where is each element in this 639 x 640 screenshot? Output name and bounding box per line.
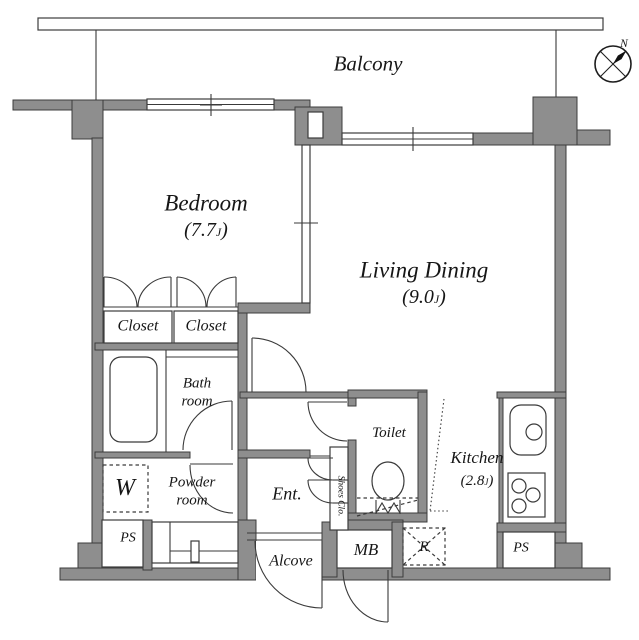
closet2-doors [177, 277, 236, 307]
toilet-bowl [372, 462, 404, 500]
balcony-label: Balcony [334, 52, 403, 77]
compass-north-label: N [620, 38, 628, 52]
burner [512, 479, 526, 493]
balcony-edge [38, 18, 603, 100]
bedroom-label: Bedroom [164, 189, 247, 216]
living-door [252, 338, 306, 392]
burner [526, 488, 540, 502]
fridge-space-label: R [419, 539, 428, 557]
toilet-tank [376, 500, 400, 514]
alcove-label: Alcove [269, 553, 313, 572]
living-dining-area: (9.0J) [402, 286, 446, 310]
shoes-closet-label: Shoes Clo. [334, 476, 345, 517]
pipe-space-left-label: PS [120, 531, 136, 548]
bedroom-area: (7.7J) [184, 219, 228, 243]
floor-plan-drawing [0, 0, 639, 640]
toilet-door [308, 402, 347, 441]
burner [512, 499, 526, 513]
sink-drain [526, 424, 542, 440]
shoes-closet-doors [308, 458, 333, 503]
bedroom-living-partition [302, 145, 310, 303]
meter-box-label: MB [354, 540, 379, 560]
entrance-label: Ent. [272, 483, 302, 504]
toilet-label: Toilet [372, 425, 406, 443]
kitchen-open-boundary [430, 399, 444, 511]
washer-space-label: W [115, 474, 135, 502]
vanity-handle [191, 541, 199, 562]
bathtub [110, 357, 157, 442]
closet2-label: Closet [186, 318, 227, 337]
kitchen-area: (2.8J) [461, 473, 494, 491]
powder-room-label: Powderroom [169, 474, 216, 509]
pillar-duct [308, 112, 323, 138]
kitchen-label: Kitchen [451, 448, 504, 468]
closet1-doors [104, 277, 171, 307]
floor-plan: Balcony N Bedroom (7.7J) Living Dining (… [0, 0, 639, 640]
closet1-label: Closet [118, 318, 159, 337]
bathroom-label: Bathroom [181, 375, 212, 410]
living-dining-label: Living Dining [360, 256, 488, 283]
pipe-space-right-label: PS [513, 541, 529, 558]
